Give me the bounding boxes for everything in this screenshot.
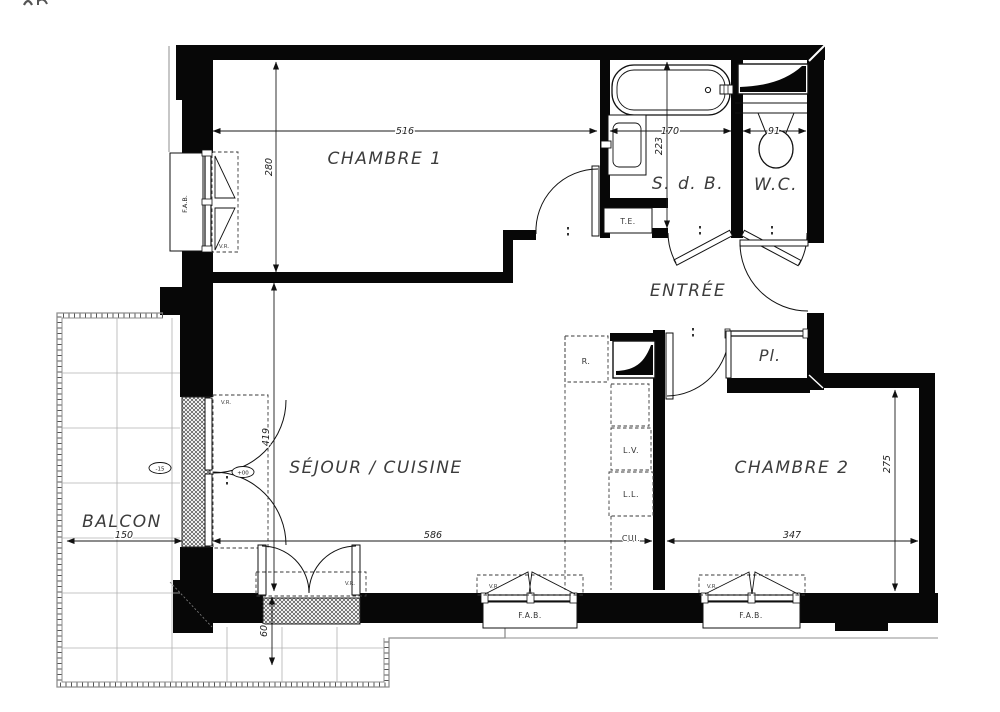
washing-machine-label: L.L. [623, 490, 639, 499]
door-balcony-south: V.R. [256, 545, 366, 596]
floor-plan-drawing: V.R. F.A.B. V.R. F.A.B. V.R. F.A.B. V [0, 0, 1000, 712]
vr-label: V.R. [707, 584, 717, 590]
door-chambre2 [666, 333, 729, 399]
vr-label: V.R. [345, 581, 355, 587]
duct-wc [738, 64, 808, 94]
dim-sejour-height: 419 [261, 428, 272, 446]
window-sejour: V.R. F.A.B. [477, 572, 583, 628]
fridge-label: R. [582, 357, 591, 366]
dim-sejour-width: 586 [424, 530, 442, 541]
walls [160, 44, 938, 633]
sink-vanity [601, 115, 646, 175]
threshold-hatched-south [263, 598, 360, 624]
vr-label: V.R. [221, 400, 231, 406]
dim-chambre1-height: 280 [264, 158, 275, 176]
page-corner-artifact [24, 0, 47, 5]
sink-faucet [601, 141, 611, 148]
door-stop-marks [226, 226, 773, 485]
door-wc [742, 230, 807, 265]
fab-label: F.A.B. [739, 611, 762, 620]
window-chambre1: V.R. F.A.B. [170, 150, 238, 252]
dim-balcony-depth: 60 [259, 625, 270, 637]
tub-faucet [720, 85, 733, 94]
room-label-balcon: BALCON [82, 512, 162, 532]
window-chambre2: V.R. F.A.B. [699, 572, 805, 628]
fab-label: F.A.B. [181, 195, 189, 213]
vr-label: V.R. [489, 584, 499, 590]
electrical-panel: T.E. [604, 208, 652, 233]
duct-kitchen [613, 341, 655, 378]
dim-sdb-width: 170 [661, 126, 679, 137]
dim-sdb-height: 223 [654, 137, 665, 155]
dim-chambre2-width: 347 [783, 530, 801, 541]
room-label-sejour: SÉJOUR / CUISINE [289, 456, 462, 478]
room-label-placard: Pl. [759, 346, 781, 365]
balcony-tiles [62, 318, 384, 682]
balcony-railing [60, 316, 387, 685]
room-label-cuisine: CUI. [622, 534, 640, 543]
dim-chambre1-width: 516 [396, 126, 414, 137]
dim-wc-width: 91 [768, 126, 780, 137]
door-chambre1 [536, 166, 599, 236]
room-label-wc: W.C. [754, 175, 798, 195]
fab-label: F.A.B. [518, 611, 541, 620]
tub-drain [705, 87, 710, 92]
room-label-chambre2: CHAMBRE 2 [735, 458, 850, 478]
dim-chambre2-height: 275 [882, 455, 893, 473]
vr-label: V.R. [219, 244, 229, 250]
counter-box [611, 384, 649, 426]
level-marker-floor: +00 [232, 467, 254, 478]
door-sdb [668, 230, 732, 265]
level-marker-balcony: -15 [149, 463, 171, 474]
level-balcony-text: -15 [156, 467, 165, 473]
room-label-entree: ENTRÉE [650, 279, 726, 301]
bathtub [612, 65, 733, 115]
floor-plan-page: V.R. F.A.B. V.R. F.A.B. V.R. F.A.B. V [0, 0, 1000, 712]
level-floor-text: +00 [237, 471, 249, 477]
room-label-chambre1: CHAMBRE 1 [328, 149, 443, 169]
dishwasher-label: L.V. [623, 446, 639, 455]
te-label: T.E. [619, 217, 635, 226]
room-label-sdb: S. d. B. [652, 174, 724, 194]
